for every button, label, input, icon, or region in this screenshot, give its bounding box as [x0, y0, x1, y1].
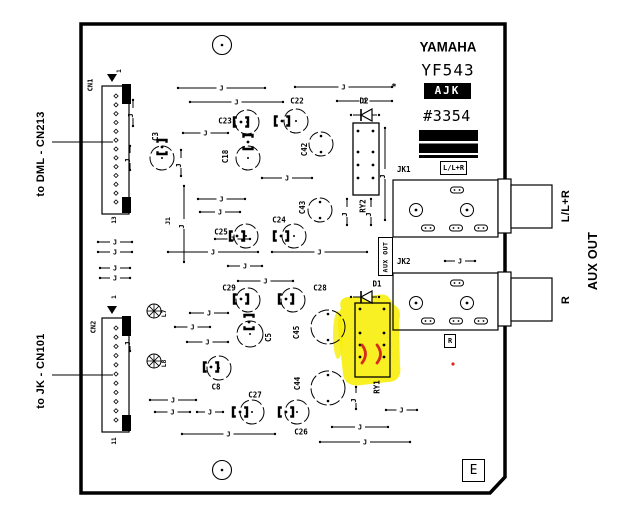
solder-pad-dot	[466, 302, 469, 305]
solder-pad-dot	[227, 132, 229, 134]
connector-pin	[114, 335, 118, 339]
solder-pad-dot	[131, 251, 133, 253]
solder-pad-dot	[327, 339, 330, 342]
ry1-designator: RY1	[373, 380, 381, 394]
solder-pad-dot	[327, 374, 330, 377]
solder-pad-dot	[174, 326, 176, 328]
jack-pad-oval	[422, 318, 435, 324]
jack-pad-oval	[475, 225, 488, 231]
capacitor-label: C27	[248, 391, 262, 400]
connector-pin	[114, 138, 118, 142]
highlight-marker-streak	[333, 311, 343, 359]
solder-pad-dot	[97, 251, 99, 253]
jack-pad-oval	[450, 318, 463, 324]
jumper-label: J	[219, 196, 223, 204]
connector-pin	[114, 94, 118, 98]
solder-pad-dot	[227, 265, 229, 267]
solder-pad-dot	[239, 211, 241, 213]
solder-pad-dot	[214, 238, 216, 240]
capacitor-label: C5	[264, 333, 273, 342]
jumper-label: J	[365, 212, 373, 216]
jumper-label: J	[226, 431, 230, 439]
solder-pad-dot	[327, 400, 330, 403]
solder-pad-dot	[387, 426, 389, 428]
relay-pin	[359, 332, 362, 335]
capacitor-label: C44	[293, 376, 302, 390]
solder-pad-dot	[331, 426, 333, 428]
asterisk-mark: *	[391, 84, 396, 93]
solder-pad-dot	[99, 267, 101, 269]
jumper-label: J	[113, 265, 117, 273]
jumper-label: J	[399, 407, 403, 415]
solder-pad-dot	[459, 282, 461, 284]
capacitor-label: C43	[298, 200, 307, 214]
solder-pad-dot	[320, 151, 323, 154]
solder-pad-dot	[478, 320, 480, 322]
capacitor-label: C26	[294, 428, 308, 437]
pcb-diagram-page: JJJJJJJJJJJJJJJJJJJJJJJJJJJJJJJJJJJJJC3C…	[0, 0, 623, 529]
connector-pin	[114, 344, 118, 348]
solder-pad-dot	[296, 411, 298, 413]
leader-label-dml: to DML - CN213	[35, 111, 47, 196]
connector-pin	[114, 156, 118, 160]
solder-pad-dot	[483, 227, 485, 229]
jack-body	[511, 185, 552, 228]
solder-pad-dot	[149, 399, 151, 401]
jumper-label: J	[218, 209, 222, 217]
solder-pad-dot	[249, 333, 251, 335]
relay-pin	[372, 151, 375, 154]
connector-key-tab	[122, 197, 131, 213]
capacitor-label: C42	[300, 143, 309, 157]
capacitor-label: C25	[214, 228, 228, 237]
solder-pad-dot	[182, 132, 184, 134]
solder-pad-dot	[454, 282, 456, 284]
solder-pad-dot	[129, 277, 131, 279]
solder-pad-dot	[227, 341, 229, 343]
connector-pin	[114, 165, 118, 169]
solder-pad-dot	[183, 261, 185, 263]
diode-triangle	[361, 109, 372, 121]
capacitor-polarity-bracket	[158, 140, 167, 154]
solder-pad-dot	[181, 433, 183, 435]
solder-pad-dot	[350, 296, 352, 298]
solder-pad-dot	[221, 44, 224, 47]
solder-pad-dot	[237, 280, 239, 282]
jack2-signal-box: R	[444, 334, 456, 348]
solder-pad-dot	[327, 313, 330, 316]
solder-pad-dot	[131, 241, 133, 243]
jack-passthrough	[498, 179, 511, 233]
revision-box: E	[462, 459, 485, 482]
relay-pin	[357, 177, 360, 180]
jumper-label: J	[124, 341, 132, 345]
capacitor-label: C28	[313, 284, 327, 293]
jumper-label: J	[263, 278, 267, 286]
relay-pin	[372, 130, 375, 133]
jumper-label: J	[124, 158, 132, 162]
cn1-pin1-number: 1	[117, 69, 123, 73]
connector-pin	[114, 353, 118, 357]
solder-pad-dot	[183, 185, 185, 187]
solder-pad-dot	[391, 100, 393, 102]
solder-pad-dot	[378, 114, 380, 116]
solder-pad-dot	[244, 198, 246, 200]
barcode-block	[419, 130, 478, 158]
jack-passthrough	[498, 272, 511, 326]
solder-pad-dot	[161, 157, 163, 159]
jumper-label: J	[170, 409, 174, 417]
cn2-pin11-number: 11	[112, 437, 118, 444]
solder-pad-dot	[384, 219, 386, 221]
solder-pad-dot	[459, 189, 461, 191]
jumper-label: J	[207, 310, 211, 318]
ry2-designator: RY2	[359, 199, 367, 213]
jumper-label: J	[178, 224, 186, 228]
solder-pad-dot	[274, 433, 276, 435]
solder-pad-dot	[195, 399, 197, 401]
connector-pin	[114, 390, 118, 394]
relay-pin	[383, 344, 386, 347]
highlight-marker	[338, 294, 400, 385]
solder-pad-dot	[249, 238, 251, 240]
jumper-label: J	[113, 239, 117, 247]
solder-pad-dot	[478, 227, 480, 229]
solder-pad-dot	[261, 265, 263, 267]
ext-label-r: R	[560, 296, 572, 304]
solder-pad-dot	[466, 209, 469, 212]
solder-pad-dot	[370, 224, 372, 226]
jack-pad-oval	[451, 280, 464, 286]
solder-pad-dot	[209, 326, 211, 328]
cn1-designator: CN1	[88, 79, 95, 92]
solder-pad-dot	[293, 235, 295, 237]
aux-out-box-label: AUX OUT	[382, 241, 390, 272]
cn1-pin13-number: 13	[112, 216, 118, 223]
solder-pad-dot	[483, 320, 485, 322]
jack-pad-oval	[450, 225, 463, 231]
solder-pad-dot	[444, 260, 446, 262]
connector-pin	[114, 129, 118, 133]
relay-outline	[353, 123, 379, 195]
solder-pad-dot	[99, 277, 101, 279]
solder-pad-dot	[180, 175, 182, 177]
connector-pin	[114, 147, 118, 151]
leader-label-jk: to JK - CN101	[35, 333, 47, 408]
solder-pad-dot	[430, 320, 432, 322]
solder-pad-dot	[251, 411, 253, 413]
connector-pin	[114, 191, 118, 195]
solder-pad-dot	[319, 217, 322, 220]
solder-pad-dot	[189, 411, 191, 413]
solder-pad-dot	[222, 411, 224, 413]
connector-pin	[114, 409, 118, 413]
solder-pad-dot	[425, 227, 427, 229]
solder-pad-dot	[132, 125, 134, 127]
jumper-label: J	[379, 174, 387, 178]
jumper-label: J	[175, 163, 183, 167]
solder-pad-dot	[319, 441, 321, 443]
ext-label-aux-out: AUX OUT	[586, 232, 600, 290]
solder-pad-dot	[180, 149, 182, 151]
jumper-label: J	[350, 398, 358, 402]
relay-pin	[359, 356, 362, 359]
jumper-label: J	[190, 324, 194, 332]
relay-pin	[383, 308, 386, 311]
solder-pad-dot	[264, 87, 266, 89]
connector-pin	[114, 372, 118, 376]
jumper-label: J	[205, 339, 209, 347]
board-number: #3354	[423, 107, 471, 125]
solder-pad-dot	[453, 320, 455, 322]
capacitor-polarity-bracket	[274, 232, 288, 241]
jack-pad-oval	[422, 225, 435, 231]
solder-pad-dot	[350, 114, 352, 116]
solder-pad-dot	[257, 251, 259, 253]
solder-pad-dot	[370, 198, 372, 200]
solder-pad-dot	[154, 411, 156, 413]
solder-pad-dot	[458, 227, 460, 229]
solder-pad-dot	[415, 209, 418, 212]
connector-pin	[114, 381, 118, 385]
j1-designator: J1	[165, 217, 172, 225]
jumper-label: J	[127, 113, 135, 117]
d2-designator: D2	[359, 97, 368, 105]
connector-pin	[114, 200, 118, 204]
solder-pad-dot	[247, 157, 249, 159]
solder-pad-dot	[189, 101, 191, 103]
solder-pad-dot	[474, 260, 476, 262]
jack1-designator: JK1	[397, 165, 411, 174]
relay-pin	[357, 130, 360, 133]
jumper-label: J	[458, 258, 462, 266]
jumper-label: J	[113, 249, 117, 257]
capacitor-label: C22	[290, 97, 304, 106]
jumper-label: J	[317, 249, 321, 257]
solder-pad-dot	[415, 302, 418, 305]
solder-pad-dot	[221, 469, 224, 472]
capacitor-polarity-bracket	[279, 408, 293, 417]
capacitor-polarity-bracket	[234, 118, 248, 127]
solder-pad-dot	[409, 441, 411, 443]
connector-pin	[114, 112, 118, 116]
solder-pad-dot	[355, 408, 357, 410]
solder-pad-dot	[132, 99, 134, 101]
capacitor-polarity-bracket	[275, 117, 289, 126]
relay-pin	[357, 151, 360, 154]
cn2-designator: CN2	[91, 321, 98, 334]
connector-pin	[114, 363, 118, 367]
jumper-label: J	[219, 85, 223, 93]
jumper-label: J	[203, 130, 207, 138]
solder-pad-dot	[129, 267, 131, 269]
solder-pad-dot	[319, 201, 322, 204]
capacitor-label: C45	[292, 326, 301, 340]
solder-pad-dot	[295, 120, 297, 122]
aux-out-box: AUX OUT	[378, 237, 393, 276]
relay-pin	[383, 356, 386, 359]
solder-pad-dot	[282, 101, 284, 103]
solder-pad-dot	[177, 87, 179, 89]
jack-body	[511, 278, 552, 321]
jumper-label: J	[211, 249, 215, 257]
jack-pad-oval	[451, 187, 464, 193]
relay-pin	[372, 164, 375, 167]
connector-pin	[114, 173, 118, 177]
jack2-designator: JK2	[397, 257, 411, 266]
solder-pad-dot	[430, 227, 432, 229]
connector-pin	[114, 418, 118, 422]
pin1-arrow	[107, 74, 117, 82]
jumper-label: J	[113, 275, 117, 283]
solder-pad-dot	[189, 312, 191, 314]
jumper-label: J	[208, 409, 212, 417]
connector-pin	[114, 399, 118, 403]
solder-pad-dot	[196, 411, 198, 413]
solder-pad-dot	[167, 251, 169, 253]
inductor-label: L8	[160, 360, 168, 368]
jack-pad-oval	[475, 318, 488, 324]
connector-key-tab	[122, 316, 131, 336]
pin1-arrow	[107, 306, 117, 314]
jumper-label: J	[171, 397, 175, 405]
solder-pad-dot	[378, 296, 380, 298]
inductor-label: L7	[160, 310, 168, 318]
solder-pad-dot	[271, 251, 273, 253]
connector-pin	[114, 120, 118, 124]
jumper-label: J	[234, 99, 238, 107]
solder-pad-dot	[227, 312, 229, 314]
solder-pad-dot	[199, 211, 201, 213]
connector-pin	[114, 326, 118, 330]
cn2-pin1-number: 1	[112, 295, 118, 299]
jumper-label: J	[243, 263, 247, 271]
capacitor-label: C29	[222, 284, 236, 293]
solder-pad-dot	[294, 86, 296, 88]
solder-pad-dot	[346, 198, 348, 200]
relay-pin	[383, 332, 386, 335]
capacitor-polarity-bracket	[204, 363, 218, 372]
jumper-label: J	[341, 84, 345, 92]
capacitor-label: C23	[218, 117, 232, 126]
solder-pad-dot	[97, 241, 99, 243]
jack1-signal-box: L/L+R	[440, 161, 467, 175]
connector-pin	[114, 182, 118, 186]
solder-pad-dot	[346, 224, 348, 226]
capacitor-label: C24	[272, 216, 286, 225]
solder-pad-dot	[458, 320, 460, 322]
solder-pad-dot	[261, 177, 263, 179]
solder-pad-dot	[336, 100, 338, 102]
connector-key-tab	[122, 415, 131, 431]
solder-pad-dot	[453, 227, 455, 229]
relay-pin	[372, 177, 375, 180]
yamaha-logo: YAMAHA	[420, 39, 477, 55]
jumper-label: J	[363, 439, 367, 447]
relay-pin	[357, 164, 360, 167]
solder-pad-dot	[416, 409, 418, 411]
relay-pin	[359, 308, 362, 311]
board-model: YF543	[421, 61, 474, 80]
jumper-label: J	[341, 212, 349, 216]
solder-pad-dot	[384, 127, 386, 129]
solder-pad-dot	[311, 177, 313, 179]
red-annotation-dot	[451, 362, 454, 365]
ext-label-llr: L/L+R	[560, 190, 572, 222]
solder-pad-dot	[320, 135, 323, 138]
board-code-badge: AJK	[424, 83, 471, 99]
solder-pad-dot	[425, 320, 427, 322]
connector-pin	[114, 103, 118, 107]
d1-designator: D1	[372, 280, 381, 288]
solder-pad-dot	[292, 280, 294, 282]
solder-pad-dot	[454, 189, 456, 191]
solder-pad-dot	[245, 235, 247, 237]
connector-key-tab	[122, 84, 131, 104]
solder-pad-dot	[197, 198, 199, 200]
capacitor-label: C8	[211, 383, 221, 392]
capacitor-label: C18	[221, 149, 230, 163]
jumper-label: J	[285, 175, 289, 183]
solder-pad-dot	[355, 386, 357, 388]
solder-pad-dot	[385, 409, 387, 411]
capacitor-label: C3	[151, 132, 160, 142]
solder-pad-dot	[186, 341, 188, 343]
jumper-label: J	[358, 424, 362, 432]
solder-pad-dot	[366, 251, 368, 253]
